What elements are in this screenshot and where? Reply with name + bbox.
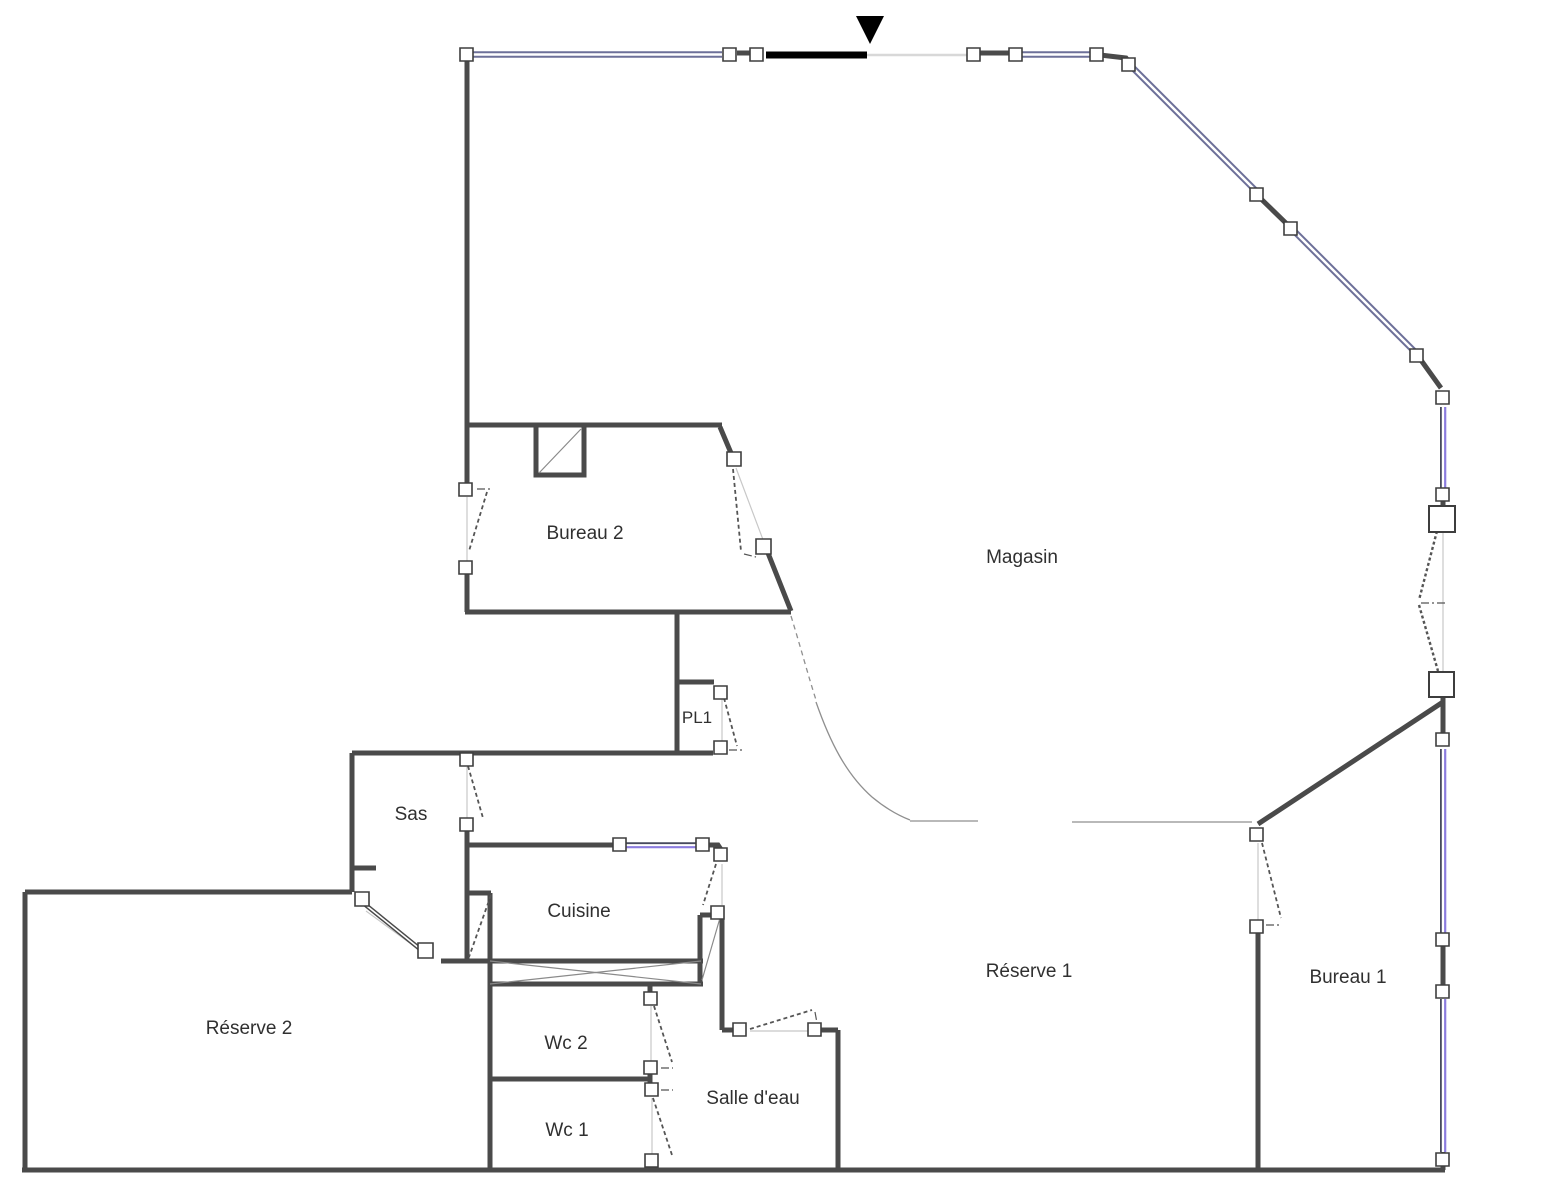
room-label-reserve2: Réserve 2 xyxy=(206,1018,293,1039)
room-label-wc2: Wc 2 xyxy=(544,1033,587,1054)
window-glazing-dark xyxy=(622,407,1441,1152)
walls-layer xyxy=(22,52,1445,1172)
room-label-reserve1: Réserve 1 xyxy=(986,961,1073,982)
room-label-cuisine: Cuisine xyxy=(547,901,610,922)
room-label-bureau2: Bureau 2 xyxy=(546,523,623,544)
room-label-sas: Sas xyxy=(395,804,428,825)
window-glazing-slate xyxy=(472,52,1418,355)
room-label-magasin: Magasin xyxy=(986,547,1058,568)
room-label-salledeau: Salle d'eau xyxy=(706,1088,799,1109)
junction-markers xyxy=(355,48,1449,1167)
wall-pillar-markers xyxy=(1429,506,1455,697)
door-leaves xyxy=(468,469,1281,1155)
open-boundary-line xyxy=(816,702,1252,822)
floor-plan-canvas: Bureau 2 Magasin PL1 Sas Cuisine Réserve… xyxy=(0,0,1556,1200)
entrance-arrow-icon xyxy=(856,16,884,44)
room-labels: Bureau 2 Magasin PL1 Sas Cuisine Réserve… xyxy=(206,523,1387,1141)
room-label-pl1: PL1 xyxy=(682,708,712,727)
door-axis-marks xyxy=(477,489,1446,1090)
room-label-wc1: Wc 1 xyxy=(545,1120,588,1141)
open-boundary-dashed xyxy=(791,616,816,700)
floor-plan-page: Bureau 2 Magasin PL1 Sas Cuisine Réserve… xyxy=(0,0,1556,1200)
room-label-bureau1: Bureau 1 xyxy=(1309,967,1386,988)
reserve2-door-panel-core xyxy=(362,902,420,949)
double-door-leaves xyxy=(1419,531,1438,671)
